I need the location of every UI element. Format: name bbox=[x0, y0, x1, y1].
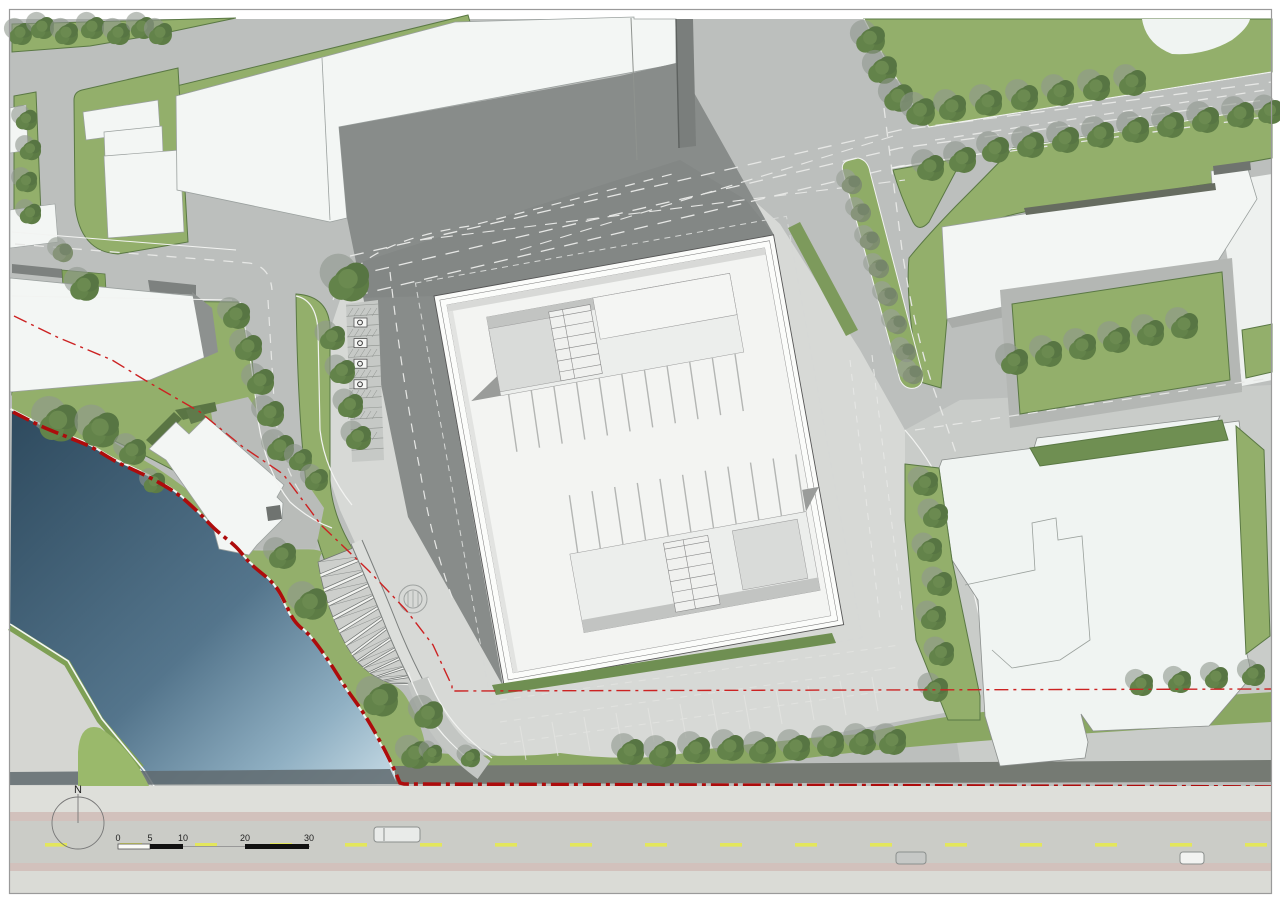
svg-text:0: 0 bbox=[115, 833, 120, 843]
svg-text:N: N bbox=[74, 784, 82, 796]
svg-text:5: 5 bbox=[147, 833, 152, 843]
svg-text:30: 30 bbox=[304, 833, 314, 843]
svg-text:10: 10 bbox=[178, 833, 188, 843]
svg-text:20: 20 bbox=[240, 833, 250, 843]
